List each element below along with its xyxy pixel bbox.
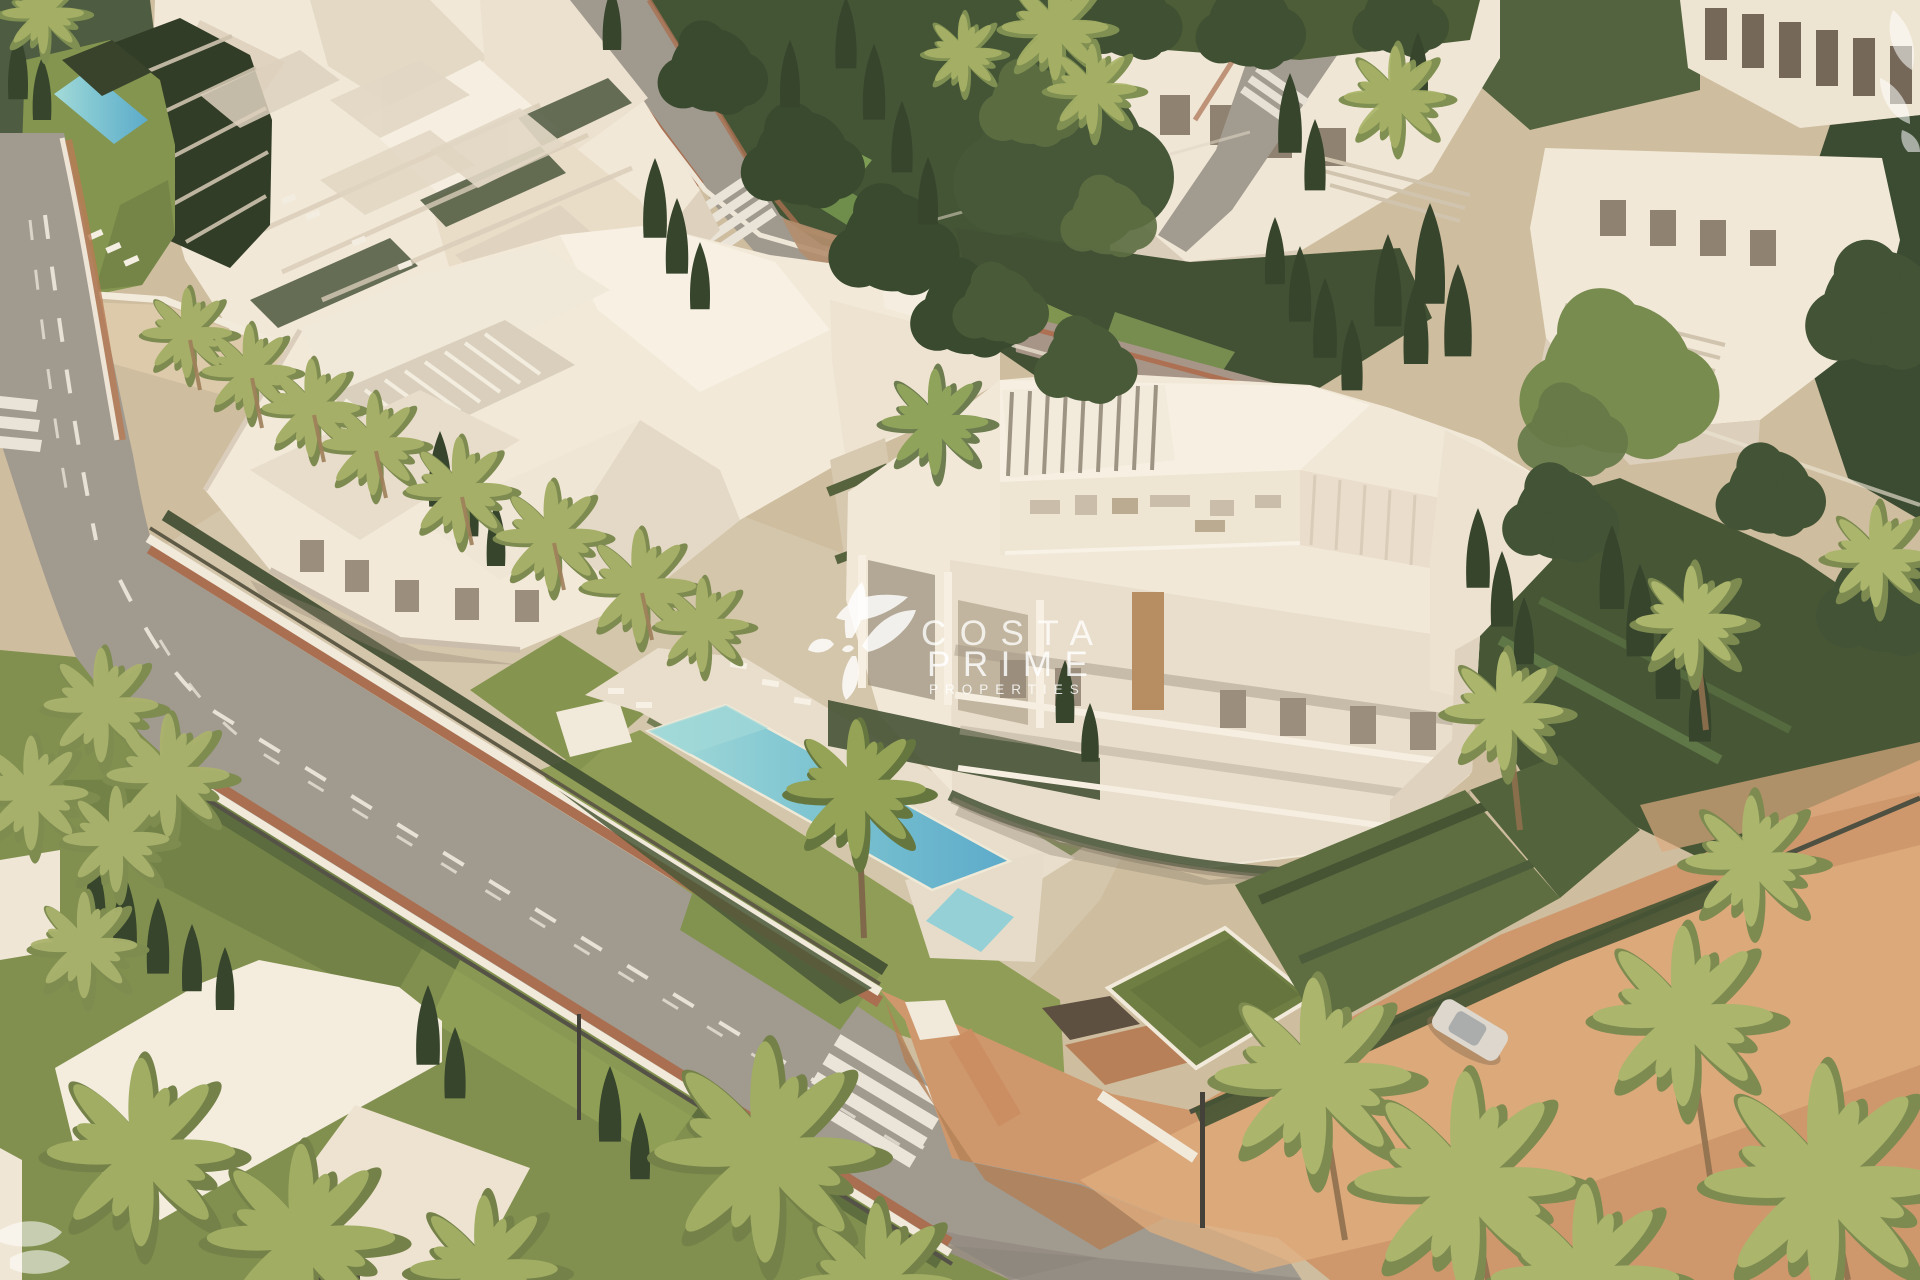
svg-text:PROPERTIES: PROPERTIES — [929, 682, 1086, 697]
svg-text:PRIME: PRIME — [927, 645, 1100, 684]
